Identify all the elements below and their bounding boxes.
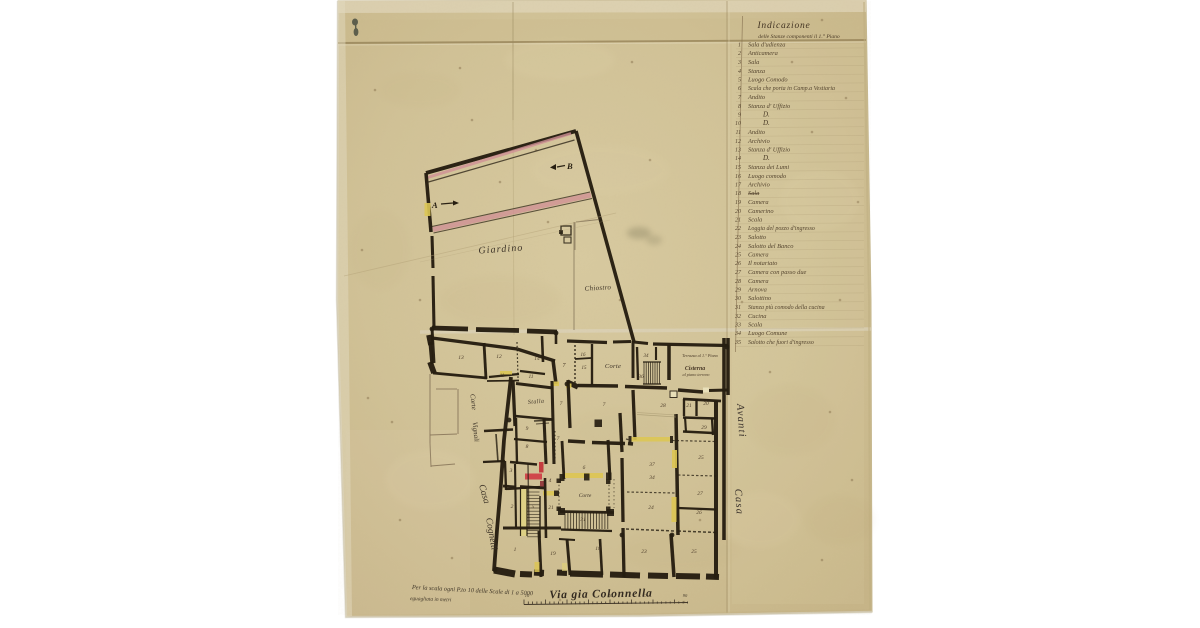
svg-text:5: 5 bbox=[532, 504, 535, 510]
svg-text:15: 15 bbox=[735, 165, 741, 171]
svg-text:21: 21 bbox=[686, 403, 692, 409]
svg-text:9: 9 bbox=[526, 426, 529, 432]
svg-text:Andito: Andito bbox=[747, 129, 765, 136]
svg-text:12: 12 bbox=[496, 354, 502, 360]
svg-text:6: 6 bbox=[738, 86, 741, 92]
svg-text:Stanza: Stanza bbox=[748, 68, 765, 75]
svg-text:Salotto che fuori d'ingresso: Salotto che fuori d'ingresso bbox=[748, 339, 814, 346]
svg-text:27: 27 bbox=[735, 270, 742, 276]
svg-text:8: 8 bbox=[738, 104, 741, 110]
svg-text:16: 16 bbox=[735, 174, 741, 180]
svg-text:23: 23 bbox=[641, 549, 647, 555]
svg-text:Scala che porta in Camp.a Vest: Scala che porta in Camp.a Vestiaria bbox=[748, 86, 835, 92]
svg-text:17: 17 bbox=[643, 593, 648, 598]
svg-text:Salotto: Salotto bbox=[748, 234, 766, 241]
svg-text:26: 26 bbox=[735, 261, 741, 267]
svg-text:D.: D. bbox=[762, 154, 770, 162]
svg-text:29: 29 bbox=[701, 425, 707, 431]
svg-text:Camera: Camera bbox=[748, 252, 769, 259]
svg-text:10: 10 bbox=[525, 593, 530, 598]
svg-text:13: 13 bbox=[458, 355, 464, 361]
svg-text:34: 34 bbox=[644, 354, 650, 359]
svg-text:17: 17 bbox=[735, 183, 742, 189]
svg-text:Sala: Sala bbox=[748, 190, 759, 197]
svg-text:9: 9 bbox=[738, 113, 741, 119]
svg-text:23: 23 bbox=[735, 235, 741, 241]
svg-text:Il notariato: Il notariato bbox=[747, 260, 777, 267]
svg-text:Corte: Corte bbox=[605, 363, 621, 370]
svg-text:18: 18 bbox=[735, 191, 741, 197]
svg-text:7: 7 bbox=[560, 401, 563, 407]
svg-text:A: A bbox=[431, 200, 438, 210]
svg-text:5: 5 bbox=[738, 78, 741, 84]
svg-text:Camera: Camera bbox=[748, 278, 769, 285]
svg-text:Stanza più comodo della cucina: Stanza più comodo della cucina bbox=[748, 305, 825, 311]
svg-text:Luogo Comodo: Luogo Comodo bbox=[747, 77, 788, 84]
svg-text:90: 90 bbox=[683, 593, 688, 598]
svg-text:18: 18 bbox=[595, 546, 601, 552]
svg-text:Sala: Sala bbox=[748, 59, 759, 66]
svg-text:Indicazione: Indicazione bbox=[756, 21, 810, 31]
svg-text:Andito: Andito bbox=[747, 94, 765, 101]
svg-text:B: B bbox=[566, 161, 573, 171]
svg-text:Stalla: Stalla bbox=[528, 399, 545, 406]
svg-text:25: 25 bbox=[691, 549, 697, 555]
svg-text:Via gia Colonnella: Via gia Colonnella bbox=[549, 587, 652, 601]
svg-text:13: 13 bbox=[735, 148, 741, 154]
svg-text:11: 11 bbox=[499, 373, 504, 379]
svg-text:26: 26 bbox=[696, 510, 702, 516]
svg-text:22: 22 bbox=[735, 226, 741, 232]
svg-text:32: 32 bbox=[734, 314, 741, 320]
svg-text:36: 36 bbox=[637, 374, 644, 380]
svg-text:27: 27 bbox=[697, 491, 703, 497]
svg-text:Stanza d' Uffizio: Stanza d' Uffizio bbox=[748, 147, 790, 154]
svg-text:D.: D. bbox=[762, 119, 770, 127]
svg-text:29: 29 bbox=[735, 288, 741, 294]
svg-text:7: 7 bbox=[603, 402, 606, 408]
svg-text:Corte: Corte bbox=[468, 394, 478, 411]
svg-text:Camera: Camera bbox=[748, 199, 769, 206]
svg-text:19: 19 bbox=[735, 200, 741, 206]
svg-text:Casa: Casa bbox=[732, 488, 745, 515]
svg-text:20: 20 bbox=[703, 401, 709, 407]
svg-text:40: 40 bbox=[608, 593, 613, 598]
svg-text:Stanza d' Uffizio: Stanza d' Uffizio bbox=[748, 103, 790, 110]
svg-text:Camera con passo due: Camera con passo due bbox=[748, 269, 807, 276]
svg-text:delle Stanze componenti il 1.°: delle Stanze componenti il 1.° Piano bbox=[758, 33, 840, 40]
svg-text:Salotto del Banco: Salotto del Banco bbox=[748, 243, 793, 250]
svg-text:34: 34 bbox=[734, 330, 741, 337]
svg-text:16: 16 bbox=[581, 353, 587, 358]
svg-text:11: 11 bbox=[735, 130, 741, 136]
svg-text:1: 1 bbox=[738, 43, 741, 49]
svg-text:Terrazza al 1.° Piano: Terrazza al 1.° Piano bbox=[682, 353, 718, 358]
svg-text:Luogo comodo: Luogo comodo bbox=[747, 173, 786, 180]
svg-text:3: 3 bbox=[509, 468, 513, 474]
svg-text:37: 37 bbox=[648, 462, 655, 468]
svg-text:34: 34 bbox=[648, 474, 655, 481]
svg-text:Chiostro: Chiostro bbox=[584, 283, 611, 292]
svg-text:Archivio: Archivio bbox=[747, 138, 770, 145]
svg-text:2: 2 bbox=[511, 504, 514, 510]
svg-text:21: 21 bbox=[548, 505, 554, 511]
svg-text:24: 24 bbox=[648, 504, 654, 511]
svg-text:35: 35 bbox=[734, 340, 741, 346]
svg-text:25: 25 bbox=[698, 455, 704, 461]
svg-text:28: 28 bbox=[735, 279, 741, 285]
svg-text:Cucina: Cucina bbox=[748, 313, 766, 320]
svg-text:Arnova: Arnova bbox=[747, 287, 767, 294]
svg-text:3: 3 bbox=[737, 60, 741, 66]
svg-text:19: 19 bbox=[550, 551, 556, 557]
svg-text:D.: D. bbox=[762, 111, 770, 119]
svg-text:4: 4 bbox=[738, 68, 741, 75]
svg-text:7: 7 bbox=[557, 436, 560, 442]
svg-text:24: 24 bbox=[735, 243, 741, 250]
svg-text:Camerino: Camerino bbox=[748, 208, 774, 215]
svg-text:14: 14 bbox=[735, 155, 741, 162]
svg-text:Stanza dei Lumi: Stanza dei Lumi bbox=[748, 164, 789, 171]
svg-text:21: 21 bbox=[735, 218, 741, 224]
svg-text:Corte: Corte bbox=[579, 493, 592, 499]
svg-text:12: 12 bbox=[735, 139, 741, 145]
svg-text:Loggia del pozzo d'ingresso: Loggia del pozzo d'ingresso bbox=[747, 226, 815, 232]
svg-text:1: 1 bbox=[514, 547, 517, 553]
svg-text:Salottino: Salottino bbox=[748, 295, 771, 302]
svg-text:15: 15 bbox=[582, 366, 588, 371]
svg-text:Scala: Scala bbox=[748, 322, 762, 329]
svg-text:4: 4 bbox=[549, 477, 552, 484]
svg-text:Scala: Scala bbox=[748, 217, 762, 224]
svg-text:al piano terreno: al piano terreno bbox=[682, 372, 709, 377]
svg-text:2: 2 bbox=[738, 51, 741, 57]
svg-text:25: 25 bbox=[735, 253, 741, 259]
svg-text:Anticamera: Anticamera bbox=[747, 50, 778, 57]
svg-text:14: 14 bbox=[534, 355, 540, 362]
svg-text:Archivio: Archivio bbox=[747, 182, 770, 189]
svg-text:8: 8 bbox=[526, 444, 529, 450]
svg-text:Luogo Comune: Luogo Comune bbox=[747, 330, 787, 337]
svg-text:6: 6 bbox=[583, 465, 586, 471]
svg-text:10: 10 bbox=[735, 121, 741, 127]
svg-text:11: 11 bbox=[528, 374, 533, 380]
svg-text:28: 28 bbox=[660, 403, 666, 409]
svg-text:30: 30 bbox=[734, 296, 741, 302]
svg-text:33: 33 bbox=[734, 323, 741, 329]
svg-text:31: 31 bbox=[734, 305, 741, 311]
svg-text:20: 20 bbox=[735, 209, 741, 215]
svg-text:Sala d'udienza: Sala d'udienza bbox=[748, 42, 785, 49]
svg-text:31: 31 bbox=[579, 517, 586, 523]
